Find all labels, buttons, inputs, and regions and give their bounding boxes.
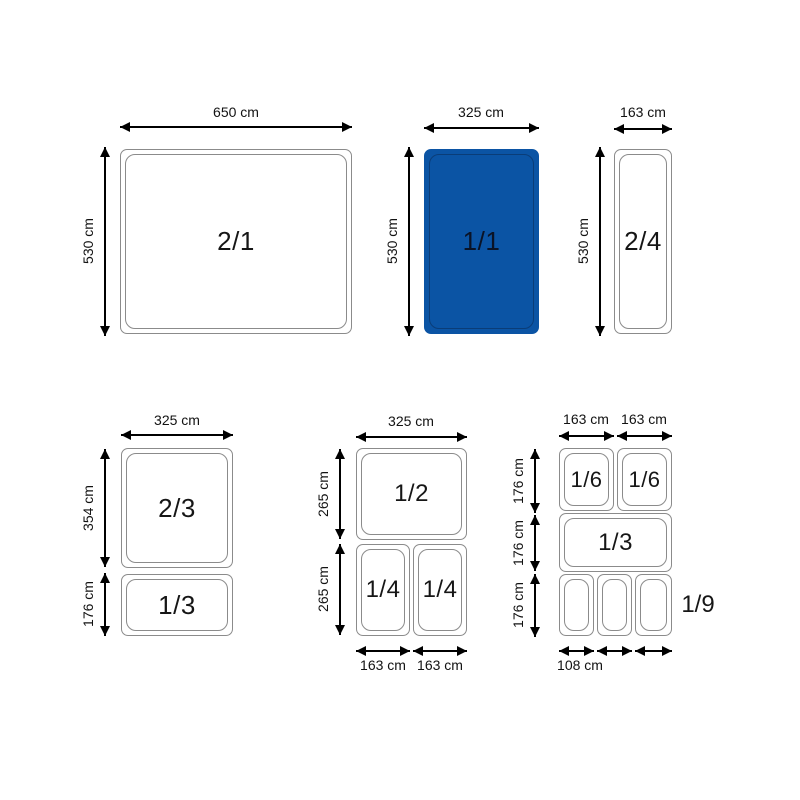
pan-1-1-label: 1/1: [463, 226, 501, 257]
width-arrow-1-4-b: [413, 650, 467, 652]
pan-2-1: 2/1: [120, 149, 352, 334]
pan-1-6-a: 1/6: [559, 448, 614, 511]
pan-1-9-b-inner: [602, 579, 627, 631]
height-arrow-row2: [534, 515, 536, 571]
width-label-1-4-b: 163 cm: [400, 657, 480, 673]
pan-1-3-left: 1/3: [121, 574, 233, 636]
height-label-1-4-row: 265 cm: [315, 559, 331, 619]
pan-1-1-highlighted: 1/1: [424, 149, 539, 334]
width-arrow-bottom-middle: [356, 436, 467, 438]
width-label-2-4: 163 cm: [603, 104, 683, 120]
width-arrow-1-9-a: [559, 650, 594, 652]
height-arrow-2-4: [599, 147, 601, 336]
pan-1-9-b: [597, 574, 632, 636]
width-arrow-1-9-b: [597, 650, 632, 652]
height-label-2-3: 354 cm: [80, 478, 96, 538]
pan-1-9-c: [635, 574, 672, 636]
height-label-1-3-left: 176 cm: [80, 574, 96, 634]
pan-1-9-a-inner: [564, 579, 589, 631]
pan-2-4-inner: 2/4: [619, 154, 667, 329]
pan-1-4-a-label: 1/4: [366, 576, 401, 604]
pan-1-4-b-inner: 1/4: [418, 549, 462, 631]
width-label-bottom-left: 325 cm: [137, 412, 217, 428]
pan-1-3-right-label: 1/3: [598, 529, 633, 557]
height-label-row2: 176 cm: [510, 513, 526, 573]
pan-2-1-label: 2/1: [217, 226, 255, 257]
height-label-row1: 176 cm: [510, 451, 526, 511]
height-label-1-1: 530 cm: [384, 211, 400, 271]
width-label-1-9: 108 cm: [540, 657, 620, 673]
height-arrow-1-2: [339, 449, 341, 539]
pan-1-3-left-inner: 1/3: [126, 579, 228, 631]
width-label-bottom-middle: 325 cm: [371, 413, 451, 429]
pan-1-6-b: 1/6: [617, 448, 672, 511]
height-label-row3: 176 cm: [510, 575, 526, 635]
pan-1-6-b-inner: 1/6: [622, 453, 667, 506]
width-arrow-1-1: [424, 127, 539, 129]
height-arrow-row3: [534, 574, 536, 637]
pan-1-4-b: 1/4: [413, 544, 467, 636]
pan-1-4-a: 1/4: [356, 544, 410, 636]
width-arrow-bottom-left: [121, 434, 233, 436]
pan-2-3: 2/3: [121, 448, 233, 568]
pan-1-6-a-inner: 1/6: [564, 453, 609, 506]
pan-1-9-a: [559, 574, 594, 636]
pan-1-9-label: 1/9: [674, 591, 722, 619]
pan-1-2-label: 1/2: [394, 480, 429, 508]
width-label-1-1: 325 cm: [441, 104, 521, 120]
width-label-col2: 163 cm: [604, 411, 684, 427]
height-arrow-1-4-row: [339, 544, 341, 635]
pan-1-1-inner: 1/1: [429, 154, 534, 329]
pan-2-4-label: 2/4: [624, 226, 662, 257]
width-arrow-2-4: [614, 128, 672, 130]
width-arrow-col1: [559, 435, 614, 437]
pan-1-6-b-label: 1/6: [629, 467, 661, 493]
pan-1-4-b-label: 1/4: [423, 576, 458, 604]
height-arrow-row1: [534, 449, 536, 513]
pan-1-2: 1/2: [356, 448, 467, 540]
width-arrow-2-1: [120, 126, 352, 128]
width-arrow-col2: [617, 435, 672, 437]
pan-1-9-c-inner: [640, 579, 667, 631]
pan-2-3-inner: 2/3: [126, 453, 228, 563]
pan-1-4-a-inner: 1/4: [361, 549, 405, 631]
height-arrow-1-1: [408, 147, 410, 336]
height-arrow-2-3: [104, 449, 106, 567]
width-arrow-1-9-c: [635, 650, 672, 652]
pan-1-3-right-inner: 1/3: [564, 518, 667, 567]
pan-2-4: 2/4: [614, 149, 672, 334]
pan-2-3-label: 2/3: [158, 493, 196, 524]
height-arrow-2-1: [104, 147, 106, 336]
width-arrow-1-4-a: [356, 650, 410, 652]
height-label-2-1: 530 cm: [80, 211, 96, 271]
width-label-2-1: 650 cm: [196, 104, 276, 120]
height-arrow-1-3-left: [104, 573, 106, 636]
pan-1-3-left-label: 1/3: [158, 590, 196, 621]
pan-1-6-a-label: 1/6: [571, 467, 603, 493]
gn-pan-size-diagram: 650 cm 530 cm 2/1 325 cm 530 cm 1/1 163 …: [0, 0, 800, 800]
height-label-1-2: 265 cm: [315, 464, 331, 524]
pan-1-2-inner: 1/2: [361, 453, 462, 535]
pan-1-3-right: 1/3: [559, 513, 672, 572]
height-label-2-4: 530 cm: [575, 211, 591, 271]
pan-2-1-inner: 2/1: [125, 154, 347, 329]
